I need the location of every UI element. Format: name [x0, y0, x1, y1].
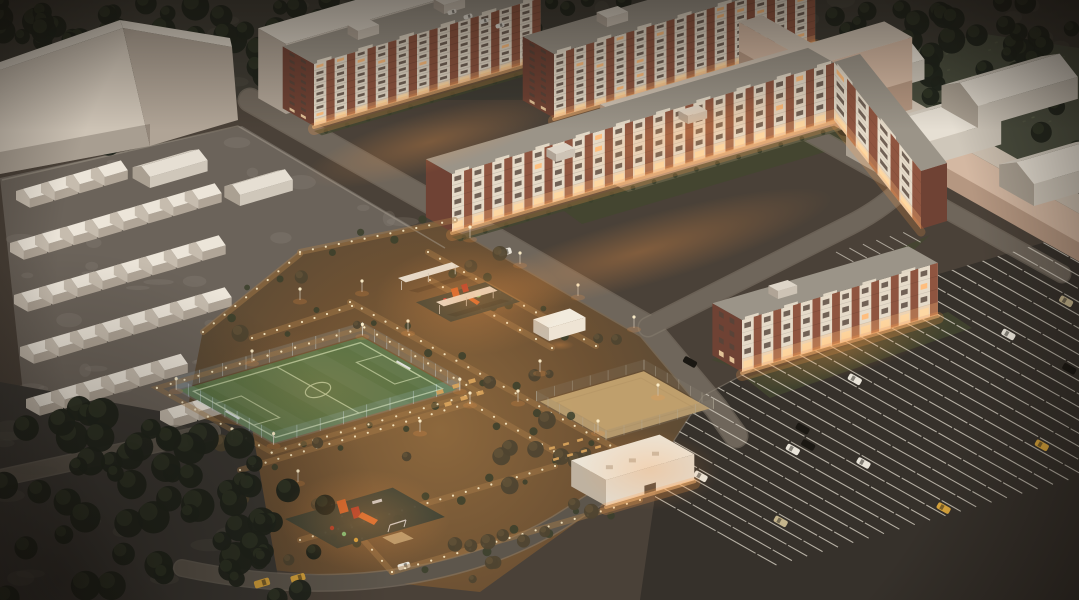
- scene-svg: Residential quarter — aerial dusk render…: [0, 0, 1079, 600]
- layer-overlay: [0, 0, 1079, 600]
- render-viewport: Residential quarter — aerial dusk render…: [0, 0, 1079, 600]
- corner-shade: [0, 0, 1079, 600]
